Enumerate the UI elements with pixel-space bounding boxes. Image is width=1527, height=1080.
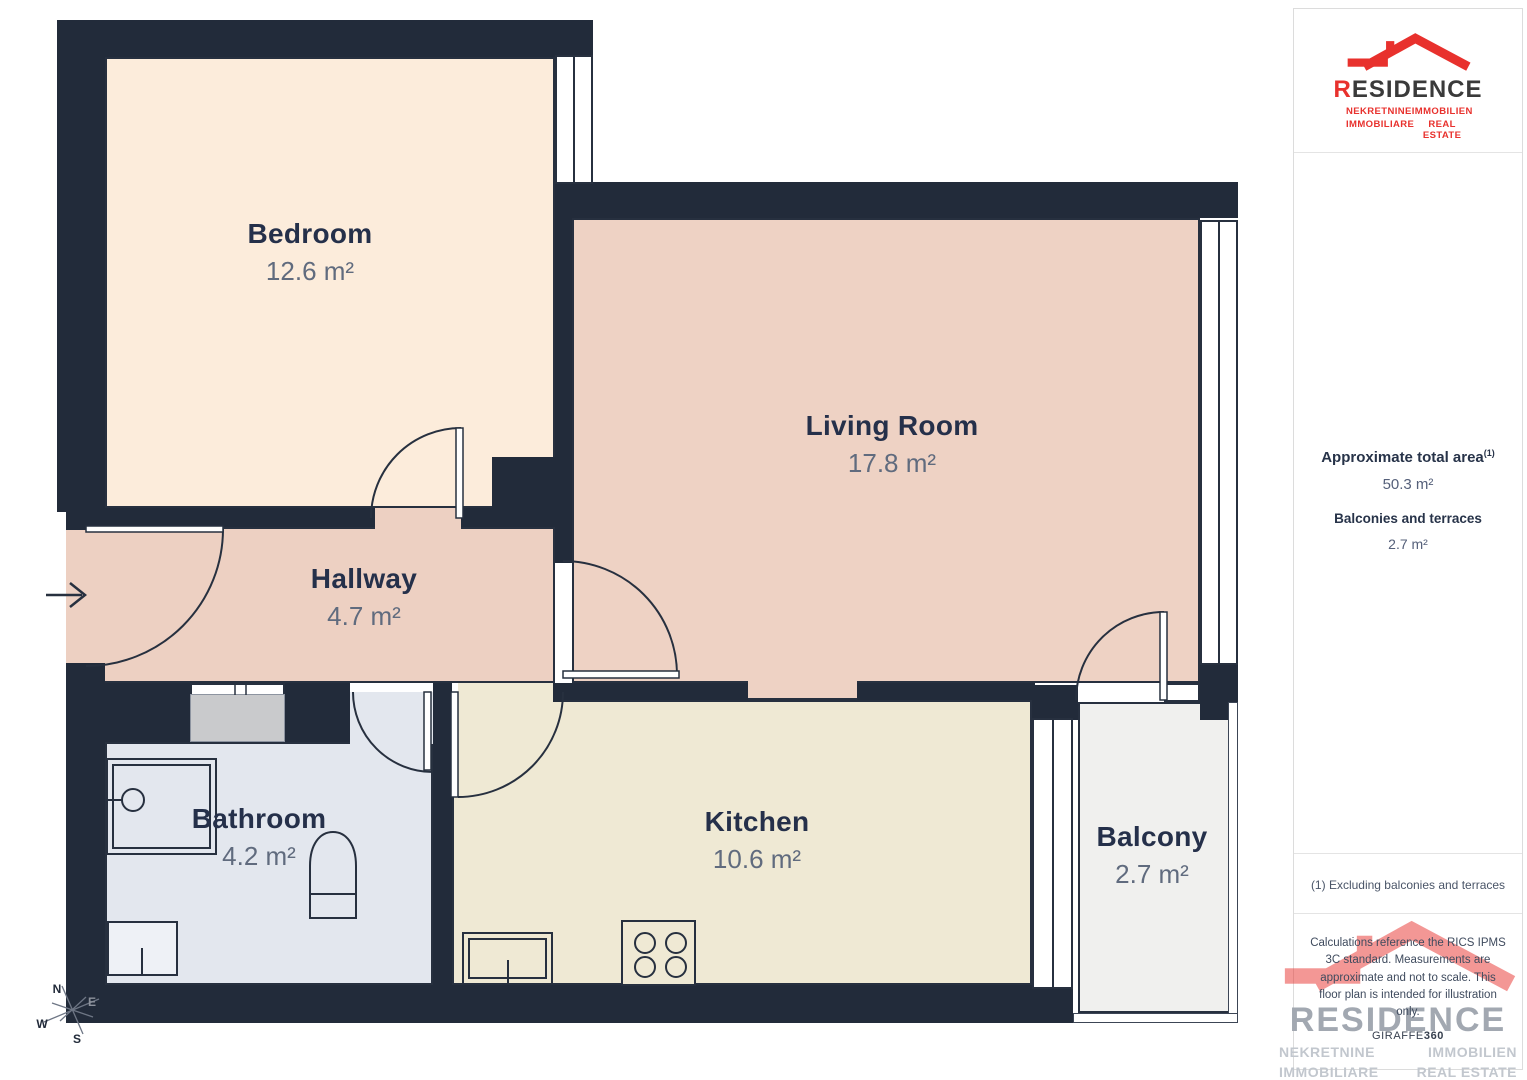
balcony-parapet: [1073, 1013, 1238, 1023]
balconies-label: Balconies and terraces: [1294, 511, 1522, 526]
wall: [857, 683, 1035, 700]
room-name: Bedroom: [248, 218, 373, 250]
room-area: 12.6 m²: [248, 256, 373, 287]
living-kitchen-passage: [748, 681, 857, 700]
brand-taglines: NEKRETNINE IMMOBILIEN: [1346, 106, 1470, 117]
window-icon: [555, 55, 593, 184]
roof-icon: [1344, 30, 1472, 76]
provider-suffix: 360: [1424, 1030, 1444, 1042]
bathroom-door-opening: [350, 692, 433, 744]
wall: [86, 508, 375, 527]
balconies-value: 2.7 m²: [1294, 536, 1522, 552]
label-balcony: Balcony 2.7 m²: [1096, 821, 1207, 890]
tagline: REAL ESTATE: [1414, 119, 1470, 141]
tagline: IMMOBILIEN: [1412, 106, 1473, 117]
wall: [433, 683, 452, 985]
kitchen-door-opening: [458, 683, 553, 702]
disclaimer-text: Calculations reference the RICS IPMS 3C …: [1310, 935, 1506, 1021]
label-bedroom: Bedroom 12.6 m²: [248, 218, 373, 287]
wall: [555, 218, 572, 563]
brand-initial: R: [1333, 76, 1351, 103]
total-area-sup: (1): [1484, 448, 1495, 458]
sidebar-divider: [1294, 913, 1522, 914]
wall: [553, 683, 563, 702]
room-area: 10.6 m²: [705, 844, 810, 875]
brand-text: RESIDENCE: [1332, 76, 1484, 104]
room-name: Living Room: [806, 410, 979, 442]
label-bathroom: Bathroom 4.2 m²: [192, 803, 327, 872]
room-area: 4.7 m²: [311, 601, 417, 632]
wall: [57, 20, 105, 512]
room-area: 4.2 m²: [192, 841, 327, 872]
entry-opening: [66, 530, 88, 663]
wall: [1032, 685, 1078, 720]
label-hallway: Hallway 4.7 m²: [311, 563, 417, 632]
wall: [66, 512, 88, 530]
total-area-label: Approximate total area(1): [1294, 448, 1522, 466]
room-name: Bathroom: [192, 803, 327, 835]
room-name: Kitchen: [705, 806, 810, 838]
watermark-taglines: NEKRETNINEIMMOBILIEN: [1279, 1044, 1517, 1060]
provider-credit: GIRAFFE360: [1294, 1030, 1522, 1042]
compass-w: W: [36, 1017, 48, 1031]
compass-n: N: [53, 982, 62, 996]
compass-s: S: [73, 1032, 81, 1046]
bedroom-door-opening: [375, 508, 461, 529]
agency-logo: RESIDENCE NEKRETNINE IMMOBILIEN IMMOBILI…: [1332, 30, 1484, 141]
total-area-value: 50.3 m²: [1294, 476, 1522, 493]
window-icon: [1200, 220, 1238, 665]
label-living: Living Room 17.8 m²: [806, 410, 979, 479]
wall: [66, 663, 105, 1023]
label-kitchen: Kitchen 10.6 m²: [705, 806, 810, 875]
room-name: Hallway: [311, 563, 417, 595]
window-icon: [1164, 683, 1200, 702]
room-name: Balcony: [1096, 821, 1207, 853]
provider-name: GIRAFFE: [1372, 1030, 1424, 1042]
sidebar-divider: [1294, 853, 1522, 854]
wall: [563, 683, 748, 700]
tagline: IMMOBILIARE: [1346, 119, 1414, 141]
wall: [461, 508, 492, 527]
wall: [66, 985, 1073, 1023]
wall: [57, 20, 593, 57]
sidebar-divider: [1294, 152, 1522, 153]
brand-taglines: IMMOBILIARE REAL ESTATE: [1346, 119, 1470, 141]
watermark-taglines: IMMOBILIAREREAL ESTATE: [1279, 1064, 1517, 1080]
window-icon: [1032, 718, 1073, 989]
total-area-text: Approximate total area: [1321, 449, 1484, 466]
bathroom-vent: [190, 694, 285, 742]
tagline: NEKRETNINE: [1346, 106, 1412, 117]
balcony-parapet: [1228, 702, 1238, 1015]
room-area: 17.8 m²: [806, 448, 979, 479]
footnote: (1) Excluding balconies and terraces: [1294, 878, 1522, 892]
room-area: 2.7 m²: [1096, 859, 1207, 890]
brand-rest: ESIDENCE: [1352, 76, 1483, 103]
wall: [555, 182, 1238, 218]
